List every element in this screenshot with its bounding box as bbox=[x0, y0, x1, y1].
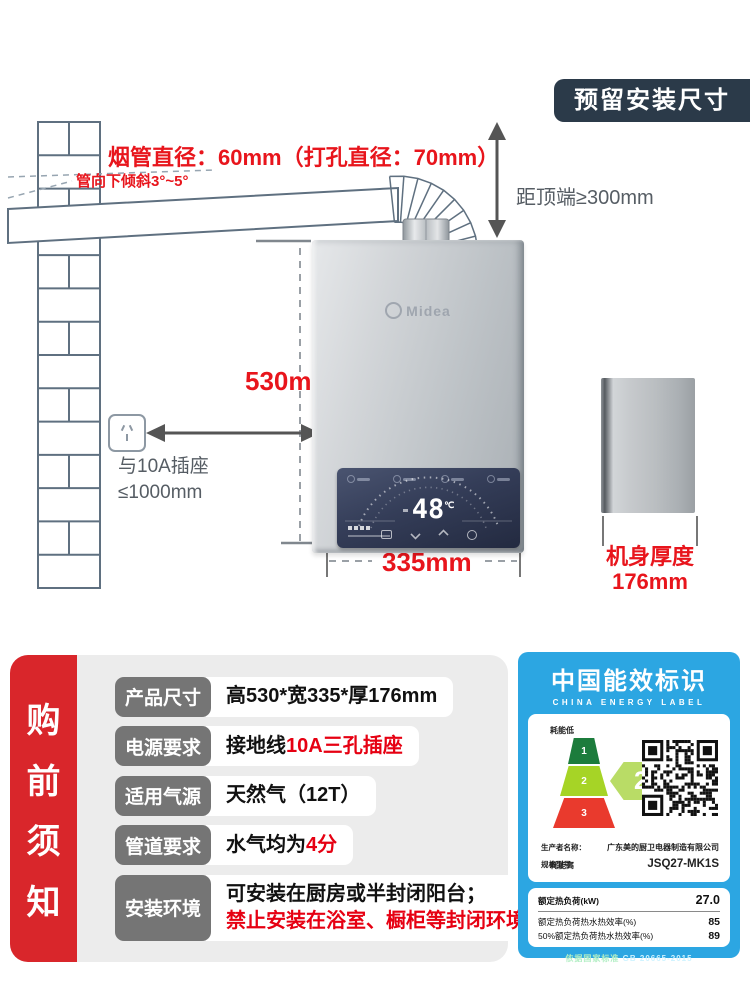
notice-row-value: 天然气（12T） bbox=[206, 776, 376, 816]
notice-row-value: 接地线10A三孔插座 bbox=[206, 726, 419, 766]
notice-sidebar-char: 须 bbox=[27, 814, 61, 863]
notice-row-value: 可安装在厨房或半封闭阳台；禁止安装在浴室、橱柜等封闭环境 bbox=[206, 875, 542, 941]
outlet-distance-label: 与10A插座 ≤1000mm bbox=[118, 454, 209, 506]
water-heater-front: Midea 48℃ bbox=[312, 240, 524, 553]
pipe-diameter-note: 烟管直径：60mm（打孔直径：70mm） bbox=[108, 140, 499, 172]
notice-row-value: 水气均为4分 bbox=[206, 825, 353, 865]
notice-row-value: 高530*宽335*厚176mm bbox=[206, 677, 453, 717]
temp-down-icon bbox=[410, 529, 420, 539]
energy-label-card: 中国能效标识 CHINA ENERGY LABEL 耗能低 1 2 3 耗能高 … bbox=[518, 652, 740, 958]
notice-row: 安装环境可安装在厨房或半封闭阳台；禁止安装在浴室、橱柜等封闭环境 bbox=[115, 875, 542, 941]
power-outlet-icon bbox=[108, 414, 146, 452]
midea-logo-icon bbox=[385, 302, 402, 319]
notice-row: 产品尺寸高530*宽335*厚176mm bbox=[115, 677, 453, 717]
energy-spec-row: 额定热负荷(kW)27.0 bbox=[538, 893, 720, 912]
control-panel: 48℃ bbox=[337, 468, 520, 548]
energy-grade-pyramid: 1 2 3 bbox=[548, 738, 620, 828]
notice-sidebar: 购前须知 bbox=[10, 655, 77, 962]
notice-row-label: 产品尺寸 bbox=[115, 677, 211, 717]
notice-row-label: 电源要求 bbox=[115, 726, 211, 766]
reserved-size-badge: 预留安装尺寸 bbox=[554, 79, 750, 122]
energy-label-title: 中国能效标识 bbox=[528, 661, 730, 696]
standard-note: 依据国家标准 GB 20665-2015 bbox=[528, 953, 730, 964]
notice-row: 适用气源天然气（12T） bbox=[115, 776, 376, 816]
notice-sidebar-char: 购 bbox=[27, 693, 61, 742]
temp-up-icon bbox=[438, 529, 448, 539]
pipe-slope-note: 管向下倾斜3°~5° bbox=[76, 170, 188, 191]
top-clearance-label: 距顶端≥300mm bbox=[516, 181, 654, 210]
energy-label-subtitle: CHINA ENERGY LABEL bbox=[528, 698, 730, 707]
depth-label: 机身厚度 176mm bbox=[592, 544, 708, 594]
brick-wall bbox=[38, 122, 100, 588]
notice-row-label: 安装环境 bbox=[115, 875, 211, 941]
notice-rows: 产品尺寸高530*宽335*厚176mm电源要求接地线10A三孔插座适用气源天然… bbox=[87, 655, 508, 962]
qr-code bbox=[642, 740, 718, 816]
notice-row-label: 适用气源 bbox=[115, 776, 211, 816]
panel-brand-marks bbox=[348, 526, 370, 530]
midea-logo: Midea bbox=[312, 302, 524, 319]
grade-2-tier: 2 bbox=[560, 766, 608, 796]
notice-sidebar-char: 知 bbox=[27, 875, 61, 924]
energy-spec-row: 50%额定热负荷热水热效率(%)89 bbox=[538, 930, 720, 942]
energy-spec-rows: 额定热负荷(kW)27.0额定热负荷热水热效率(%)8550%额定热负荷热水热效… bbox=[528, 888, 730, 947]
low-energy-label: 耗能低 bbox=[550, 725, 574, 736]
power-icon bbox=[467, 530, 477, 540]
outlet-distance-arrow bbox=[146, 424, 320, 442]
energy-spec-row: 额定热负荷热水热效率(%)85 bbox=[538, 916, 720, 928]
producer-row: 生产者名称： 广东美的厨卫电器制造有限公司 bbox=[541, 842, 719, 853]
notice-row: 管道要求水气均为4分 bbox=[115, 825, 353, 865]
notice-row: 电源要求接地线10A三孔插座 bbox=[115, 726, 419, 766]
notice-row-label: 管道要求 bbox=[115, 825, 211, 865]
purchase-notice-panel: 购前须知 产品尺寸高530*宽335*厚176mm电源要求接地线10A三孔插座适… bbox=[10, 655, 508, 962]
model-row: 规格型号： JSQ27-MK1S bbox=[541, 858, 719, 870]
energy-grade-card: 耗能低 1 2 3 耗能高 2 级 生产者名称： 广东美的厨卫电器制造有限公司 … bbox=[528, 714, 730, 882]
grade-1-tier: 1 bbox=[568, 738, 600, 764]
depth-dimension bbox=[603, 516, 697, 546]
notice-sidebar-char: 前 bbox=[27, 754, 61, 803]
water-heater-side bbox=[601, 378, 695, 513]
temperature-display: 48℃ bbox=[337, 494, 520, 525]
grade-3-tier: 3 bbox=[553, 798, 615, 828]
